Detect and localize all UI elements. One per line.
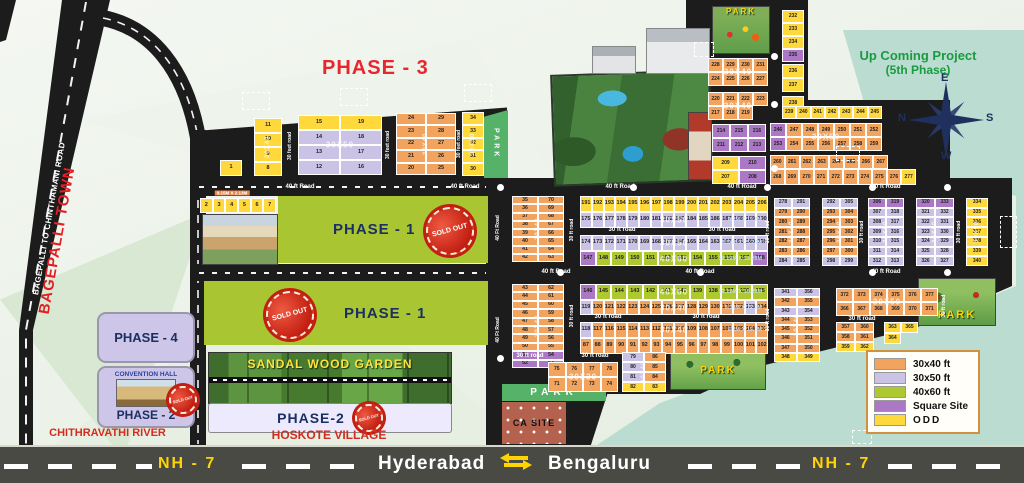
- plot-cell: 248: [802, 123, 818, 137]
- row-159-174: 1741731721711701691681671661651641631621…: [580, 235, 768, 251]
- plot-cell: 373: [853, 288, 870, 302]
- plot-cell: 131: [721, 300, 733, 315]
- plot-cell: 255: [802, 137, 818, 151]
- road-label: 30 ft road: [941, 295, 947, 318]
- plot-cell: 208: [739, 170, 766, 184]
- plot-row: 348349: [774, 353, 820, 362]
- hoskote-village-label: HOSKOTE VILLAGE: [208, 428, 450, 442]
- plot-cell: 285: [792, 256, 810, 266]
- plot-cell: 47: [512, 318, 538, 326]
- plot-row: 340: [966, 256, 988, 266]
- legend-row: 30x50 ft: [874, 371, 972, 385]
- plot-row: 146145144143142141140139138137136135: [580, 284, 768, 300]
- plot-cell: 244: [853, 106, 867, 119]
- plot-cell: 132: [733, 300, 745, 315]
- legend-swatch-square: [874, 400, 906, 412]
- phase2-left-label: PHASE - 2: [117, 408, 176, 422]
- plot-cell: 212: [730, 138, 748, 152]
- road-junction-dot: [869, 184, 876, 191]
- plot-cell: 50: [512, 343, 538, 351]
- plot-row: 311314: [868, 247, 904, 257]
- plot-cell: 374: [870, 288, 887, 302]
- p3-block-20-29: 2429232822272126202530X40: [396, 113, 456, 175]
- plot-cell: 332: [935, 208, 954, 218]
- plot-cell: 29: [426, 113, 456, 125]
- plot-cell: 250: [834, 123, 850, 137]
- plot-cell: 284: [774, 256, 792, 266]
- plot-cell: 67: [538, 221, 564, 229]
- plot-cell: 118: [580, 322, 592, 338]
- plot-row: 236: [782, 64, 804, 78]
- plot-row: 346351: [774, 334, 820, 343]
- plot-cell: 207: [712, 170, 739, 184]
- block-366-377: 37237337437537637736636736836937037130X5…: [836, 288, 938, 316]
- plot-cell: 340: [966, 256, 988, 266]
- plot-cell: 360: [855, 322, 874, 332]
- legend-row: 40x60 ft: [874, 385, 972, 399]
- plot-cell: 69: [538, 204, 564, 212]
- plot-cell: 356: [797, 288, 820, 297]
- plot-cell: 163: [709, 235, 721, 251]
- plot-cell: 323: [916, 227, 935, 237]
- plot-cell: 174: [580, 235, 592, 251]
- plot-cell: 230: [738, 58, 753, 72]
- plot-cell: 300: [840, 247, 858, 257]
- plot-cell: 170: [627, 235, 639, 251]
- plot-row: 320333: [916, 198, 954, 208]
- pairs-35-70: 3570366937683867396640654164426330X40: [512, 196, 564, 262]
- plot-cell: 329: [935, 237, 954, 247]
- plot-row: 347350: [774, 344, 820, 353]
- plot-cell: 302: [840, 227, 858, 237]
- plot-cell: 12: [298, 160, 340, 175]
- plot-row: 1741731721711701691681671661651641631621…: [580, 235, 768, 251]
- plot-cell: 178: [615, 212, 627, 228]
- pairs-320-333: 3203333213323223313233303243293253283263…: [916, 198, 954, 266]
- plot-cell: 203: [721, 196, 733, 212]
- plot-cell: 171: [615, 235, 627, 251]
- road-label: 40 ft Road: [871, 184, 900, 190]
- plot-row: 4857: [512, 326, 564, 334]
- plot-cell: 117: [592, 322, 604, 338]
- plot-cell: 21: [396, 150, 426, 162]
- plot-cell: 309: [868, 227, 886, 237]
- plot-cell: 311: [868, 247, 886, 257]
- pairs-292-305: 2923052933042943032953022963012973002982…: [822, 198, 858, 266]
- plot-cell: 161: [733, 235, 745, 251]
- plot-cell: 22: [396, 138, 426, 150]
- plot-cell: 156: [721, 251, 737, 266]
- road-junction-dot: [497, 184, 504, 191]
- road-label: 9.15M X 2.13M: [215, 191, 250, 196]
- plot-row: 338: [966, 237, 988, 247]
- legend-swatch-odd: [874, 414, 906, 426]
- plot-cell: 46: [512, 309, 538, 317]
- plot-row: 30: [462, 163, 484, 176]
- plot-cell: 147: [580, 251, 596, 266]
- p3-block-30-34: 343332313030X50: [462, 112, 484, 176]
- plot-cell: 303: [840, 217, 858, 227]
- plot-cell: 353: [797, 316, 820, 325]
- plot-row: 4362: [512, 284, 564, 292]
- plot-row: 343354: [774, 307, 820, 316]
- row-191-206: 1911921931941951961971981992002012022032…: [580, 196, 768, 212]
- plot-row: 358361: [836, 332, 874, 342]
- plot-cell: 74: [601, 377, 619, 392]
- row-119-134: 1191201211221231241251261271281291301311…: [580, 300, 768, 315]
- plot-cell: 305: [840, 198, 858, 208]
- plot-cell: 68: [538, 213, 564, 221]
- legend-row: Square Site: [874, 399, 972, 413]
- plot-cell: 113: [639, 322, 651, 338]
- plot-cell: 345: [774, 325, 797, 334]
- plot-cell: 149: [611, 251, 627, 266]
- plot-cell: 116: [604, 322, 616, 338]
- road-junction-dot: [497, 355, 504, 362]
- plot-cell: 314: [886, 247, 904, 257]
- plot-cell: 321: [916, 208, 935, 218]
- plot-cell: 364: [884, 333, 901, 344]
- plot-cell: 277: [901, 169, 916, 185]
- plot-cell: 167: [662, 235, 674, 251]
- plot-cell: 317: [886, 217, 904, 227]
- plot-cell: 166: [674, 235, 686, 251]
- plot-cell: 98: [709, 338, 721, 354]
- plot-cell: 162: [721, 235, 733, 251]
- road-label: 30 feet road: [287, 132, 293, 160]
- plot-cell: 8: [254, 162, 282, 177]
- plot-cell: 336: [966, 217, 988, 227]
- plot-row: 284285: [774, 256, 810, 266]
- plot-cell: 348: [774, 353, 797, 362]
- plot-row: 246247248249250251252: [770, 123, 882, 137]
- plot-cell: 229: [723, 58, 738, 72]
- road-label: 30 ft road: [581, 353, 608, 359]
- compass-w: W: [941, 150, 951, 162]
- plot-cell: 308: [868, 217, 886, 227]
- plot-cell: 183: [674, 212, 686, 228]
- plot-cell: 195: [627, 196, 639, 212]
- road-junction-dot: [697, 269, 704, 276]
- plot-cell: 172: [604, 235, 616, 251]
- plot-cell: 175: [580, 212, 592, 228]
- plot-cell: 242: [825, 106, 839, 119]
- plot-cell: 276: [887, 169, 902, 185]
- plot-cell: 87: [580, 338, 592, 354]
- plot-cell: 173: [592, 235, 604, 251]
- plot-cell: 145: [596, 284, 612, 300]
- convention-hall-box: CONVENTION HALL SOLD OUT PHASE - 2: [97, 366, 195, 428]
- road-junction-dot: [869, 269, 876, 276]
- plot-row: 11: [254, 118, 282, 133]
- plot-cell: 326: [916, 256, 935, 266]
- road-label: 40 ft Road: [727, 184, 756, 190]
- road-label: 40 Ft Road: [495, 317, 501, 343]
- park-label: PARK: [493, 128, 500, 159]
- road-label: 40 ft Road: [285, 184, 314, 190]
- plot-cell: 188: [733, 212, 745, 228]
- plot-cell: 247: [786, 123, 802, 137]
- plot-cell: 45: [512, 301, 538, 309]
- plot-row: 147148149150151152153154155156157158: [580, 251, 768, 266]
- plot-row: 3768: [512, 213, 564, 221]
- plot-cell: 358: [836, 332, 855, 342]
- plot-cell: 237: [782, 78, 804, 92]
- highway-dash: [688, 464, 804, 469]
- plot-cell: 20: [396, 163, 426, 175]
- legend-swatch-30x40: [874, 358, 906, 370]
- plot-cell: 192: [592, 196, 604, 212]
- row-147-158: 14714814915015115215315415515615715840X6…: [580, 251, 768, 266]
- park-label: PARK: [726, 7, 756, 53]
- plot-cell: 89: [604, 338, 616, 354]
- plot-row: 3669: [512, 204, 564, 212]
- plot-cell: 216: [748, 124, 766, 138]
- plot-row: 3570: [512, 196, 564, 204]
- plot-cell: 79: [622, 352, 644, 362]
- col-334-340: 33433533633733833934030X50: [966, 198, 988, 266]
- road-label: 30 ft road: [516, 353, 543, 359]
- plot-cell: 197: [651, 196, 663, 212]
- plot-cell: 86: [644, 352, 666, 362]
- plot-row: 260261262263264265266267: [770, 155, 888, 169]
- plot-cell: 42: [512, 254, 538, 262]
- plot-row: 1751761771781791801811821831841851861871…: [580, 212, 768, 228]
- plot-cell: 181: [651, 212, 663, 228]
- plot-cell: 246: [770, 123, 786, 137]
- plot-cell: 234: [782, 36, 804, 49]
- plot-cell: 59: [538, 309, 564, 317]
- plot-cell: 251: [850, 123, 866, 137]
- red-roof-building-photo: [688, 112, 712, 180]
- plot-row: 298299: [822, 256, 858, 266]
- road-label: 30 feet road: [385, 131, 391, 159]
- plot-cell: 157: [737, 251, 753, 266]
- plot-cell: 11: [254, 118, 282, 133]
- sold-out-badge: SOLD OUT: [421, 202, 480, 261]
- block-224-231: 22822923023122422522622730X40: [708, 58, 768, 86]
- plot-cell: 150: [627, 251, 643, 266]
- legend-row: 30x40 ft: [874, 357, 972, 371]
- plot-cell: 115: [615, 322, 627, 338]
- plot-row: 71727374: [548, 377, 618, 392]
- plot-cell: 222: [738, 92, 753, 106]
- nh7-highway: NH - 7 Hyderabad Bengaluru NH - 7: [0, 445, 1024, 483]
- plot-row: 326327: [916, 256, 954, 266]
- plot-row: 366367368369370371: [836, 302, 938, 316]
- plot-cell: 151: [643, 251, 659, 266]
- road-junction-dot: [771, 101, 778, 108]
- plot-cell: 120: [592, 300, 604, 315]
- chithravathi-river-label: CHITHRAVATHI RIVER: [20, 427, 195, 439]
- plot-row: 1317: [298, 145, 382, 160]
- plot-cell: 227: [753, 72, 768, 86]
- road-stub-outline: [694, 42, 714, 57]
- plot-cell: 206: [756, 196, 768, 212]
- plot-row: 294303: [822, 217, 858, 227]
- plot-cell: 110: [674, 322, 686, 338]
- plot-row: 321332: [916, 208, 954, 218]
- road-label: 30 ft road: [848, 316, 875, 322]
- plot-cell: 124: [639, 300, 651, 315]
- road-stub-outline: [1000, 216, 1017, 248]
- plot-cell: 81: [622, 372, 644, 382]
- legend-swatch-40x60: [874, 386, 906, 398]
- plot-cell: 338: [966, 237, 988, 247]
- plot-cell: 319: [886, 198, 904, 208]
- plot-cell: 341: [774, 288, 797, 297]
- plot-cell: 96: [686, 338, 698, 354]
- plot-cell: 25: [426, 163, 456, 175]
- plot-row: 344353: [774, 316, 820, 325]
- plot-row: 228229230231: [708, 58, 768, 72]
- plot-cell: 377: [921, 288, 938, 302]
- plot-row: 1216: [298, 160, 382, 175]
- plot-cell: 220: [708, 92, 723, 106]
- plot-cell: 31: [462, 150, 484, 163]
- road-stub-outline: [340, 88, 368, 106]
- plot-cell: 30: [462, 163, 484, 176]
- plot-row: 341356: [774, 288, 820, 297]
- plot-cell: 307: [868, 208, 886, 218]
- plot-cell: 14: [298, 130, 340, 145]
- plot-cell: 82: [622, 382, 644, 392]
- plot-row: 207208: [712, 170, 766, 184]
- plot-cell: 226: [738, 72, 753, 86]
- plot-cell: 294: [822, 217, 840, 227]
- plot-cell: 27: [426, 138, 456, 150]
- plot-row: 75767778: [548, 362, 618, 377]
- plot-cell: 146: [580, 284, 596, 300]
- ca-site: CA SITE: [502, 402, 566, 444]
- phase1-label: PHASE - 1: [333, 221, 415, 238]
- plot-cell: 293: [822, 208, 840, 218]
- plot-cell: 306: [868, 198, 886, 208]
- sandalwood-label: SANDAL WOOD GARDEN: [209, 357, 451, 371]
- road-stub-outline: [464, 84, 492, 102]
- plot-cell: 275: [872, 169, 887, 185]
- plot-cell: 221: [723, 92, 738, 106]
- plot-cell: 71: [548, 377, 566, 392]
- plot-row: 253254255256257258259: [770, 137, 882, 151]
- block-217-223: 22022122222321721821930X40: [708, 92, 768, 120]
- plot-row: 312313: [868, 256, 904, 266]
- plot-row: 4659: [512, 309, 564, 317]
- block-71-78: 757677787172737430X30: [548, 362, 618, 392]
- plot-row: 309316: [868, 227, 904, 237]
- plot-cell: 211: [712, 138, 730, 152]
- road-junction-dot: [944, 184, 951, 191]
- plot-cell: 141: [658, 284, 674, 300]
- plot-cell: 368: [870, 302, 887, 316]
- plot-cell: 10: [254, 133, 282, 148]
- convention-hall-label: CONVENTION HALL: [115, 371, 177, 378]
- plot-row: 283286: [774, 247, 810, 257]
- nh7-label-right: NH - 7: [812, 455, 870, 473]
- highway-dash: [242, 464, 370, 469]
- pairs-306-319: 3063193073183083173093163103153113143123…: [868, 198, 904, 266]
- plot-row: 297300: [822, 247, 858, 257]
- plot-cell: 235: [782, 49, 804, 62]
- plot-cell: 39: [512, 229, 538, 237]
- plot-cell: 37: [512, 213, 538, 221]
- plot-row: 234: [782, 36, 804, 49]
- plot-cell: 121: [604, 300, 616, 315]
- plot-cell: 185: [698, 212, 710, 228]
- plot-cell: 26: [426, 150, 456, 162]
- plot-cell: 350: [797, 344, 820, 353]
- plot-cell: 186: [709, 212, 721, 228]
- plot-cell: 325: [916, 247, 935, 257]
- plot-cell: 177: [604, 212, 616, 228]
- plot-cell: 182: [662, 212, 674, 228]
- block-357-362: 357360358361359362: [836, 322, 874, 352]
- plot-cell: 301: [840, 237, 858, 247]
- plot-cell: 200: [686, 196, 698, 212]
- plot-cell: 262: [800, 155, 815, 169]
- plot-cell: 241: [811, 106, 825, 119]
- plot-cell: 361: [855, 332, 874, 342]
- plot-cell: 32: [462, 138, 484, 151]
- plot-row: 282287: [774, 237, 810, 247]
- plot-cell: 342: [774, 297, 797, 306]
- phase4-label: PHASE - 4: [114, 330, 178, 345]
- plot-row: 372373374375376377: [836, 288, 938, 302]
- playground-park-photo: PARK: [712, 6, 770, 54]
- road-label: 30 ft road: [608, 227, 635, 233]
- plot-row: 4758: [512, 318, 564, 326]
- plot-cell: 304: [840, 208, 858, 218]
- plot-cell: 357: [836, 322, 855, 332]
- plot-row: 324329: [916, 237, 954, 247]
- plot-cell: 283: [774, 247, 792, 257]
- plot-row: 220221222223: [708, 92, 768, 106]
- plot-cell: 24: [396, 113, 426, 125]
- plot-cell: 335: [966, 208, 988, 218]
- row-87-102: 87888990919293949596979899100101102: [580, 338, 768, 354]
- plot-cell: 376: [904, 288, 921, 302]
- sandalwood-garden: SANDAL WOOD GARDEN: [208, 352, 452, 404]
- plot-row: 363365: [884, 322, 918, 333]
- garden-road: [209, 377, 451, 383]
- plot-row: 9: [254, 147, 282, 162]
- plot-cell: 40: [512, 237, 538, 245]
- plot-cell: 104: [745, 322, 757, 338]
- plot-row: 10: [254, 133, 282, 148]
- row-175-190: 1751761771781791801811821831841851861871…: [580, 212, 768, 228]
- legend-swatch-30x50: [874, 372, 906, 384]
- plot-cell: 346: [774, 334, 797, 343]
- plot-row: 325328: [916, 247, 954, 257]
- plot-cell: 44: [512, 292, 538, 300]
- plot-cell: 354: [797, 307, 820, 316]
- plot-cell: 169: [639, 235, 651, 251]
- plot-cell: 189: [745, 212, 757, 228]
- plot-cell: 228: [708, 58, 723, 72]
- plot-cell: 312: [868, 256, 886, 266]
- plot-row: 2126: [396, 150, 456, 162]
- plot-cell: 55: [538, 343, 564, 351]
- block-211-216: 214215216211212213: [712, 124, 766, 152]
- phase1-band-bottom: SOLD OUT PHASE - 1: [204, 281, 488, 345]
- plot-cell: 310: [868, 237, 886, 247]
- plot-cell: 272: [828, 169, 843, 185]
- road-label: 40 ft Road: [871, 269, 900, 275]
- road-junction-dot: [557, 269, 564, 276]
- road-stub-outline: [242, 92, 270, 110]
- plot-cell: 236: [782, 64, 804, 78]
- plot-row: 8085: [622, 362, 666, 372]
